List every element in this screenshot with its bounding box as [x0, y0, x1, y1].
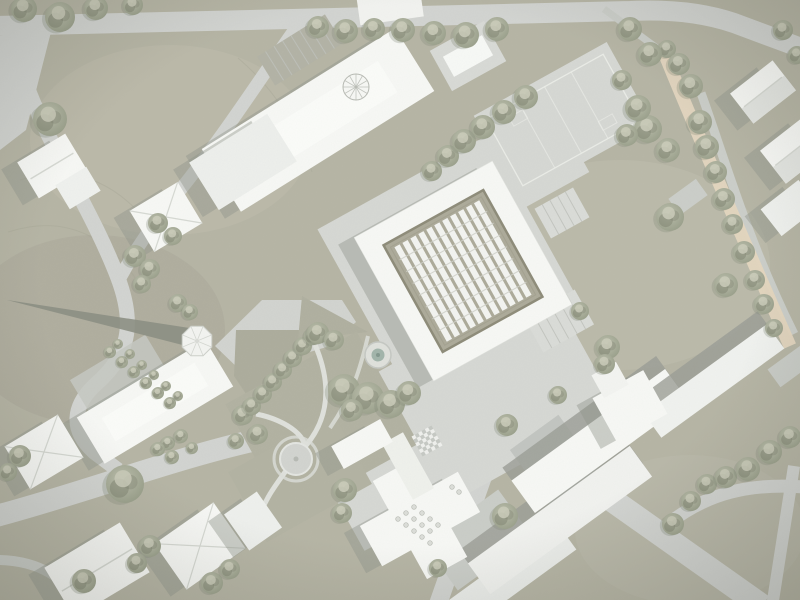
- site-plan: [0, 0, 800, 600]
- vignette-overlay: [0, 0, 800, 600]
- site-plan-canvas: [0, 0, 800, 600]
